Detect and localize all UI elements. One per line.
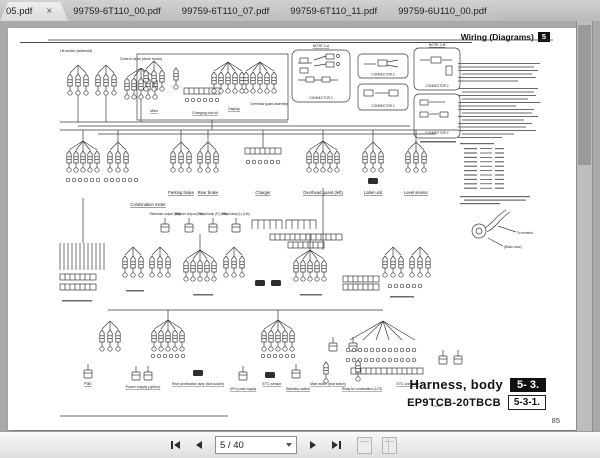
arrow-left-icon	[174, 441, 180, 449]
pdf-viewer-window: 05.pdf × 99759-6T110_00.pdf 99759-6T110_…	[0, 0, 600, 458]
bottom-fanout-connectors	[100, 310, 462, 374]
vertical-scrollbar[interactable]	[576, 21, 593, 432]
meter-output-connectors: Rearward output (NA) Washer output (NA) …	[149, 212, 342, 248]
tab-bar: 05.pdf × 99759-6T110_00.pdf 99759-6T110_…	[0, 0, 600, 22]
svg-text:Label unit: Label unit	[364, 190, 383, 195]
tab-active[interactable]: 05.pdf ×	[0, 2, 68, 21]
tab-2[interactable]: 99759-6T110_07.pdf	[170, 2, 286, 21]
last-page-button[interactable]	[327, 436, 347, 454]
svg-text:(Black color): (Black color)	[504, 245, 522, 249]
svg-text:Power supply (option): Power supply (option)	[126, 385, 161, 389]
dropdown-caret-icon[interactable]	[286, 443, 292, 447]
main-connector-box: Main Charging box kit Display Overhead g…	[137, 54, 288, 130]
svg-text:Main: Main	[150, 109, 158, 113]
svg-text:CONNECTOR 2: CONNECTOR 2	[309, 96, 332, 100]
svg-text:Display: Display	[228, 107, 240, 111]
lower-middle-connectors	[60, 188, 430, 302]
page-indicator: 5 / 40	[220, 440, 244, 451]
page-number: 85	[552, 416, 560, 425]
svg-text:NOTE 2-B: NOTE 2-B	[429, 43, 446, 47]
tab-4[interactable]: 99759-6U110_00.pdf	[386, 2, 503, 21]
note-box-b1: CONNECTOR 2	[358, 54, 408, 78]
svg-text:Lift switch (solenoid): Lift switch (solenoid)	[60, 49, 93, 53]
ref-box: 5-3-1.	[508, 395, 546, 410]
arrow-right-icon	[310, 441, 316, 449]
svg-text:CONNECTOR 2: CONNECTOR 2	[371, 73, 394, 77]
previous-page-button[interactable]	[189, 436, 209, 454]
ring-terminal-illustration: To terminal (Black color)	[472, 210, 533, 249]
last-page-icon	[339, 441, 341, 449]
top-left-connector-group: Lift switch (solenoid) Control valve (dr…	[60, 49, 162, 122]
svg-text:CONNECTOR 2: CONNECTOR 2	[425, 84, 448, 88]
svg-text:To terminal: To terminal	[517, 231, 533, 235]
svg-text:CONNECTOR 2: CONNECTOR 2	[371, 104, 394, 108]
page-indicator-input[interactable]: 5 / 40	[215, 436, 297, 454]
title-block: Harness, body 5- 3. EP9TCB-20TBCB 5-3-1.	[407, 374, 546, 410]
next-page-button[interactable]	[303, 436, 323, 454]
single-page-view-icon[interactable]	[357, 437, 372, 454]
wire-color-legend	[460, 143, 530, 204]
svg-text:ETC sensor: ETC sensor	[263, 382, 283, 386]
tab-3[interactable]: 99759-6T110_11.pdf	[278, 2, 393, 21]
svg-text:Relay for combination (LCS): Relay for combination (LCS)	[342, 387, 382, 391]
svg-text:Overhead guard assembly: Overhead guard assembly	[250, 102, 288, 106]
tab-label: 99759-6T110_00.pdf	[73, 6, 161, 17]
note-box-c2: CONNECTOR 2	[414, 94, 460, 143]
pdf-page: Wiring (Diagrams) 5	[8, 28, 576, 430]
first-page-icon	[171, 441, 173, 449]
wiring-diagram: Lift switch (solenoid) Control valve (dr…	[48, 38, 553, 428]
svg-text:Charger: Charger	[255, 190, 271, 195]
tab-label: 99759-6T110_07.pdf	[182, 6, 270, 17]
tab-label: 99759-6U110_00.pdf	[398, 6, 487, 17]
viewer-area: Wiring (Diagrams) 5	[0, 21, 600, 432]
tab-1[interactable]: 99759-6T110_00.pdf	[61, 2, 177, 21]
svg-text:GPS power supply: GPS power supply	[230, 387, 257, 391]
svg-text:Level sensor: Level sensor	[404, 190, 428, 195]
note-box-c: NOTE 2-B CONNECTOR 2	[414, 43, 460, 90]
arrow-left-icon	[196, 441, 202, 449]
model-code: EP9TCB-20TBCB	[407, 397, 501, 409]
notes-text-block	[458, 63, 540, 138]
svg-text:Control valve (drive motor): Control valve (drive motor)	[120, 57, 162, 61]
svg-text:Head lamp (L) (NA): Head lamp (L) (NA)	[222, 212, 250, 216]
svg-text:Charging box kit: Charging box kit	[192, 111, 218, 115]
first-page-button[interactable]	[165, 436, 185, 454]
two-page-view-icon[interactable]	[382, 437, 397, 454]
svg-text:CONNECTOR 2: CONNECTOR 2	[425, 131, 448, 135]
svg-text:Fan: Fan	[84, 381, 92, 386]
svg-text:Parking brake: Parking brake	[168, 190, 195, 195]
note-box-a: NOTE 2-A CONNECTOR 2	[292, 44, 350, 102]
tab-label: 05.pdf	[6, 6, 32, 17]
close-icon[interactable]: ×	[46, 7, 52, 17]
bottom-toolbar: 5 / 40	[0, 431, 600, 458]
harness-title: Harness, body	[410, 377, 503, 392]
svg-text:Main switch (seat switch): Main switch (seat switch)	[310, 382, 345, 386]
svg-text:Combination meter: Combination meter	[130, 202, 166, 207]
section-badge: 5- 3.	[510, 378, 546, 392]
arrow-right-icon	[332, 441, 338, 449]
scrollbar-thumb[interactable]	[578, 25, 591, 165]
svg-text:Standby switch: Standby switch	[286, 387, 310, 391]
svg-text:NOTE 2-A: NOTE 2-A	[313, 44, 330, 48]
svg-text:Rear brake: Rear brake	[198, 190, 219, 195]
middle-row-connectors: Parking brake Rear brake Charger Overhea…	[66, 141, 428, 207]
tab-label: 99759-6T110_11.pdf	[290, 6, 377, 17]
note-box-b2: CONNECTOR 2	[358, 84, 408, 110]
page-navigation: 5 / 40	[165, 436, 397, 454]
svg-text:Rear combination lamp (bulb so: Rear combination lamp (bulb socket)	[172, 382, 224, 386]
